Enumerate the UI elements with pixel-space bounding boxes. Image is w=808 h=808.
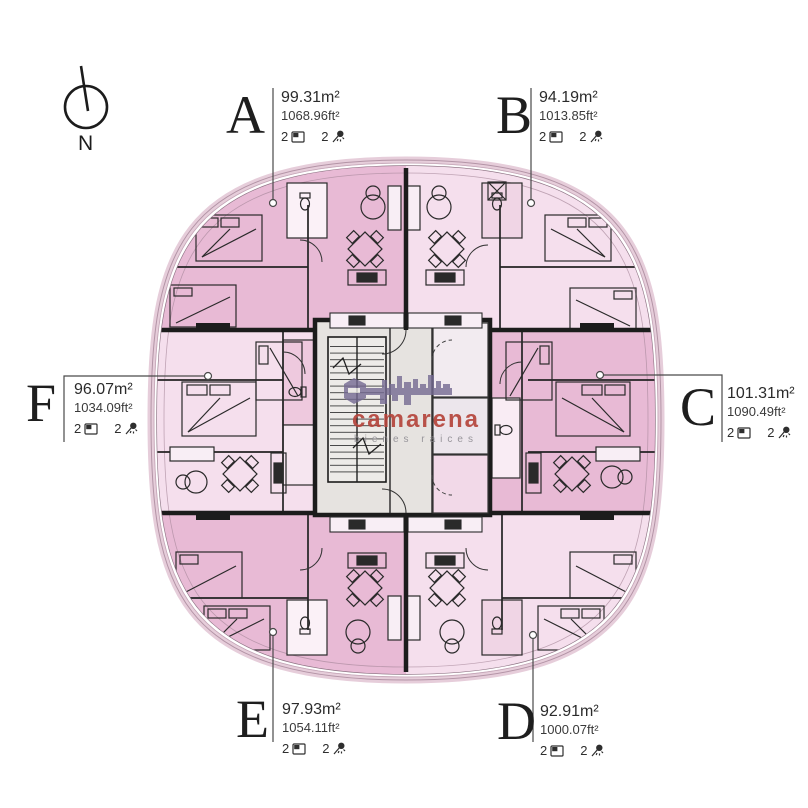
shower-icon	[331, 130, 345, 143]
unit-f-details: 96.07m² 1034.09ft² 2 2	[74, 380, 138, 436]
unit-f-bed-count: 2	[74, 421, 81, 436]
shower-icon	[590, 744, 604, 757]
unit-c-bath-count: 2	[767, 425, 774, 440]
unit-c-area-m2: 101.31m²	[727, 384, 795, 404]
shower-icon	[589, 130, 603, 143]
unit-a-bath-count: 2	[321, 129, 328, 144]
unit-e-area	[157, 513, 406, 674]
unit-f-area-m2: 96.07m²	[74, 380, 138, 400]
bed-icon	[291, 130, 306, 143]
bed-icon	[737, 426, 752, 439]
unit-b-area-ft2: 1013.85ft²	[539, 108, 603, 125]
unit-f-letter: F	[26, 376, 56, 430]
bed-icon	[550, 744, 565, 757]
unit-c-details: 101.31m² 1090.49ft² 2 2	[727, 384, 795, 440]
stairwell	[328, 337, 386, 482]
unit-e-bed-count: 2	[282, 741, 289, 756]
unit-a-area	[157, 166, 406, 330]
unit-d-area	[406, 513, 655, 674]
unit-d-bed-count: 2	[540, 743, 547, 758]
central-core	[315, 320, 490, 515]
unit-f-bath-count: 2	[114, 421, 121, 436]
shower-icon	[777, 426, 791, 439]
shower-icon	[332, 742, 346, 755]
unit-e-area-m2: 97.93m²	[282, 700, 346, 720]
unit-a-letter: A	[226, 88, 265, 142]
unit-d-area-ft2: 1000.07ft²	[540, 722, 604, 739]
unit-e-letter: E	[236, 692, 269, 746]
compass-north-label: N	[78, 132, 93, 155]
unit-b-details: 94.19m² 1013.85ft² 2 2	[539, 88, 603, 144]
floorplan-page: { "compass": { "label": "N" }, "watermar…	[0, 0, 808, 808]
unit-f-area-ft2: 1034.09ft²	[74, 400, 138, 417]
shower-icon	[124, 422, 138, 435]
unit-a-details: 99.31m² 1068.96ft² 2 2	[281, 88, 345, 144]
bed-icon	[84, 422, 99, 435]
unit-d-bath-count: 2	[580, 743, 587, 758]
unit-b-bath-count: 2	[579, 129, 586, 144]
unit-c-letter: C	[680, 380, 716, 434]
unit-a-area-m2: 99.31m²	[281, 88, 345, 108]
unit-d-area-m2: 92.91m²	[540, 702, 604, 722]
unit-b-letter: B	[496, 88, 532, 142]
unit-b-area-m2: 94.19m²	[539, 88, 603, 108]
unit-b-bed-count: 2	[539, 129, 546, 144]
compass: N	[65, 66, 107, 155]
unit-e-bath-count: 2	[322, 741, 329, 756]
unit-d-details: 92.91m² 1000.07ft² 2 2	[540, 702, 604, 758]
unit-a-bed-count: 2	[281, 129, 288, 144]
bed-icon	[549, 130, 564, 143]
unit-e-area-ft2: 1054.11ft²	[282, 720, 346, 737]
unit-d-letter: D	[497, 694, 536, 748]
unit-c-bed-count: 2	[727, 425, 734, 440]
unit-e-details: 97.93m² 1054.11ft² 2 2	[282, 700, 346, 756]
unit-c-area-ft2: 1090.49ft²	[727, 404, 795, 421]
bed-icon	[292, 742, 307, 755]
unit-a-area-ft2: 1068.96ft²	[281, 108, 345, 125]
